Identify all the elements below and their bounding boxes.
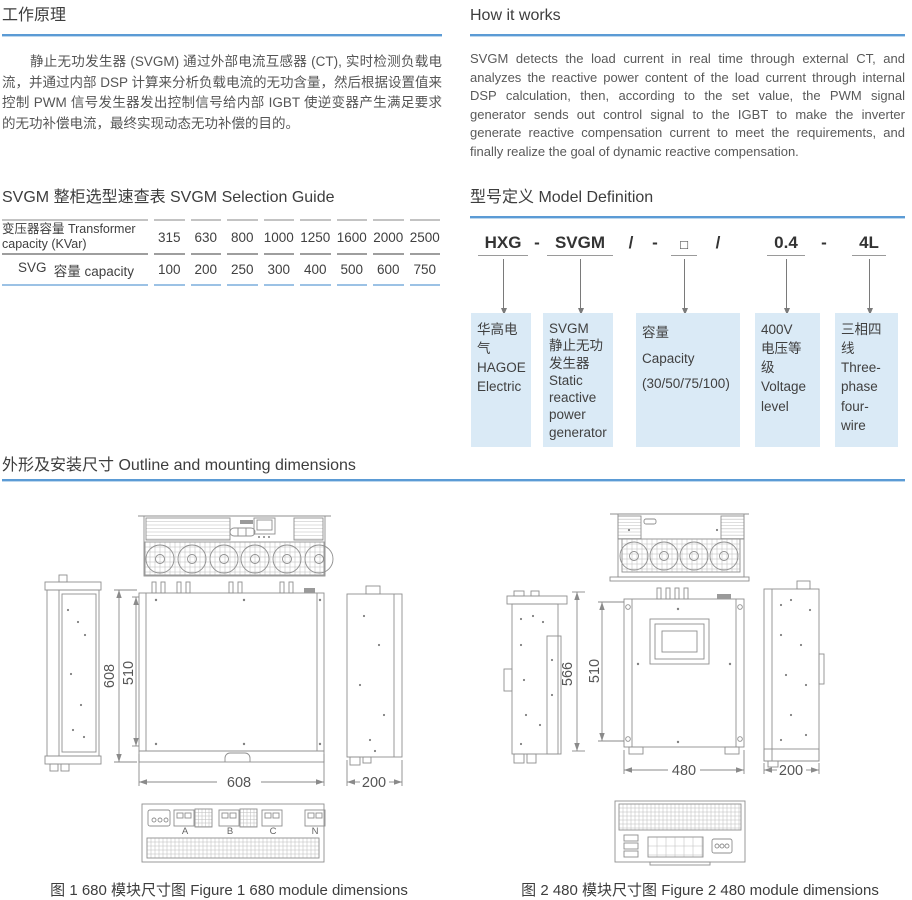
svg-text:480: 480	[672, 763, 696, 779]
svg-text:510: 510	[121, 661, 137, 685]
outline-section: 外形及安装尺寸 Outline and mounting dimensions	[2, 456, 905, 900]
table-row: SVG 容量 capacity 100 200 250 300 400 500 …	[2, 255, 440, 286]
terminal-label-b: B	[227, 826, 233, 837]
working-principle-title: 工作原理	[2, 6, 442, 25]
down-arrow-icon	[503, 259, 504, 308]
right-side-view	[347, 586, 402, 765]
row-header: SVG 容量 capacity	[2, 255, 148, 286]
drawing-680-module: A B C N 608	[14, 504, 444, 869]
left-side-view	[45, 575, 101, 771]
figure-680-module: A B C N 608	[14, 504, 444, 900]
down-arrow-icon	[684, 259, 685, 308]
table-cell: 1600	[337, 219, 368, 255]
row-header-svg: SVG	[18, 260, 47, 280]
dimension-608-horizontal: 608	[139, 754, 324, 791]
figure1-caption: 图 1 680 模块尺寸图 Figure 1 680 module dimens…	[14, 879, 444, 900]
model-token-sep: /	[624, 233, 638, 255]
model-token-sep: -	[650, 233, 660, 255]
down-arrow-icon	[580, 259, 581, 308]
table-cell: 600	[373, 255, 404, 286]
middle-row: SVGM 整柜选型速查表 SVGM Selection Guide 变压器容量 …	[2, 188, 905, 450]
model-token-sep: -	[532, 233, 542, 255]
model-box-brand: 华高电气 HAGOE Electric	[471, 313, 531, 447]
table-row: 变压器容量 Transformer capacity (KVar) 315 63…	[2, 219, 440, 255]
table-cell: 500	[337, 255, 368, 286]
working-principle-body: 静止无功发生器 (SVGM) 通过外部电流互感器 (CT), 实时检测负载电流，…	[2, 52, 442, 134]
datasheet-page: 工作原理 静止无功发生器 (SVGM) 通过外部电流互感器 (CT), 实时检测…	[0, 0, 912, 900]
model-token-wires: 4L	[852, 233, 886, 256]
right-side-view	[764, 581, 824, 767]
selection-guide-table: 变压器容量 Transformer capacity (KVar) 315 63…	[0, 219, 446, 286]
svg-text:566: 566	[560, 662, 576, 686]
model-token-brand: HXG	[478, 233, 528, 256]
model-code-diagram: HXG - SVGM / - □ / 0.4 - 4L 华高电气 HAGOE E…	[470, 233, 905, 451]
svg-text:510: 510	[587, 659, 603, 683]
dimension-510-vertical: 510	[587, 602, 624, 741]
blue-rule	[2, 479, 905, 482]
how-it-works-body: SVGM detects the load current in real ti…	[470, 50, 905, 162]
down-arrow-icon	[869, 259, 870, 308]
svg-text:200: 200	[362, 775, 386, 791]
table-cell: 200	[191, 255, 222, 286]
terminal-label-n: N	[312, 826, 319, 837]
terminal-label-c: C	[270, 826, 277, 837]
table-cell: 100	[154, 255, 185, 286]
figure2-caption: 图 2 480 模块尺寸图 Figure 2 480 module dimens…	[490, 879, 910, 900]
working-principle-section: 工作原理 静止无功发生器 (SVGM) 通过外部电流互感器 (CT), 实时检测…	[2, 6, 442, 188]
dimension-510-vertical: 510	[121, 597, 139, 746]
model-box-voltage: 400V 电压等级 Voltage level	[755, 313, 820, 447]
front-view	[624, 588, 744, 754]
figures-row: A B C N 608	[2, 504, 905, 900]
svg-text:608: 608	[227, 775, 251, 791]
row-header-capacity: 容量 capacity	[54, 260, 134, 280]
model-box-series: SVGM 静止无功 发生器 Static reactive power gene…	[543, 313, 613, 447]
model-definition-title: 型号定义 Model Definition	[470, 188, 905, 207]
blue-rule	[470, 34, 905, 37]
table-cell: 2000	[373, 219, 404, 255]
svg-text:200: 200	[779, 763, 803, 779]
table-cell: 1000	[264, 219, 295, 255]
figure-480-module: 566 510	[490, 504, 910, 900]
top-row: 工作原理 静止无功发生器 (SVGM) 通过外部电流互感器 (CT), 实时检测…	[2, 6, 905, 188]
blue-rule	[2, 34, 442, 37]
model-definition-section: 型号定义 Model Definition HXG - SVGM / - □ /…	[470, 188, 905, 450]
model-box-wires: 三相四线 Three- phase four-wire	[835, 313, 898, 447]
table-cell: 250	[227, 255, 258, 286]
table-cell: 315	[154, 219, 185, 255]
left-side-view	[504, 591, 567, 763]
model-token-series: SVGM	[547, 233, 613, 256]
selection-guide-section: SVGM 整柜选型速查表 SVGM Selection Guide 变压器容量 …	[2, 188, 442, 450]
rear-view: A B C N	[142, 804, 325, 862]
outline-title: 外形及安装尺寸 Outline and mounting dimensions	[2, 456, 905, 475]
model-token-sep: -	[819, 233, 829, 255]
model-token-sep: /	[711, 233, 725, 255]
blue-rule	[470, 216, 905, 219]
main-view	[139, 582, 324, 762]
how-it-works-title: How it works	[470, 6, 905, 25]
model-box-capacity: 容量 Capacity (30/50/75/100)	[636, 313, 740, 447]
terminal-label-a: A	[182, 826, 189, 837]
table-cell: 400	[300, 255, 331, 286]
table-cell: 800	[227, 219, 258, 255]
top-view	[610, 514, 749, 581]
drawing-480-module: 566 510	[490, 504, 910, 869]
model-token-capacity: □	[671, 233, 697, 256]
selection-guide-title: SVGM 整柜选型速查表 SVGM Selection Guide	[2, 188, 442, 207]
front-view	[138, 516, 333, 576]
table-cell: 300	[264, 255, 295, 286]
rear-view	[615, 801, 745, 865]
down-arrow-icon	[786, 259, 787, 308]
svg-text:608: 608	[102, 664, 118, 688]
dimension-566-vertical: 566	[560, 592, 585, 751]
dimension-200-horizontal: 200	[764, 763, 819, 779]
table-cell: 630	[191, 219, 222, 255]
table-cell: 1250	[300, 219, 331, 255]
model-token-voltage: 0.4	[767, 233, 805, 256]
how-it-works-section: How it works SVGM detects the load curre…	[470, 6, 905, 188]
table-cell: 2500	[410, 219, 441, 255]
table-cell: 750	[410, 255, 441, 286]
row-header: 变压器容量 Transformer capacity (KVar)	[2, 219, 148, 255]
